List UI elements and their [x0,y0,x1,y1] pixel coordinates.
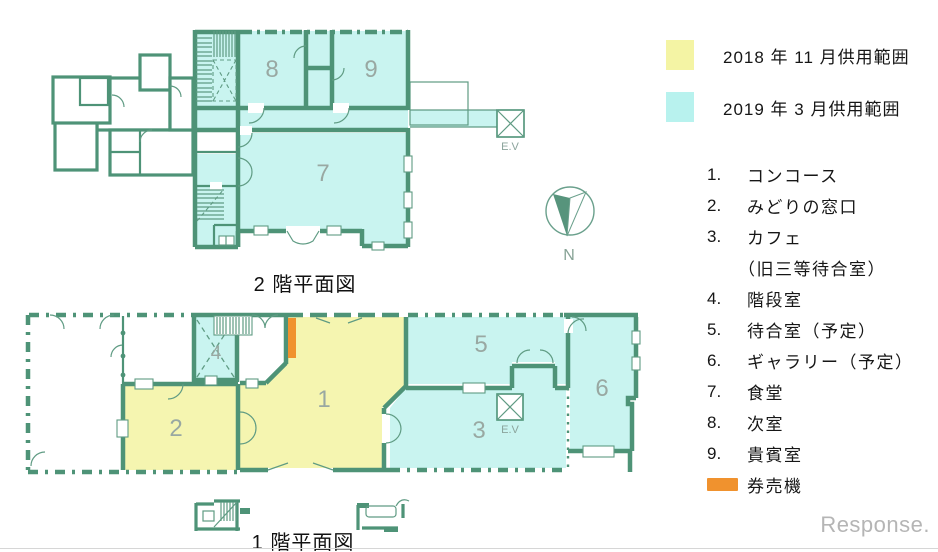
room-list-label: 貴賓室 [747,441,803,466]
ticket-machine-label: 券売機 [747,472,803,497]
room-list-num: 6. [707,351,733,371]
room-list-item-1: 1. コンコース [707,159,914,190]
room-number-1: 1 [317,386,330,413]
room-list-item-8: 8. 次室 [707,407,914,438]
floor1-plan: 1 2 3 4 5 6 E.V [28,315,640,472]
room-list-item-7: 7. 食堂 [707,376,914,407]
room-list-label: 待合室（予定） [747,317,877,342]
room-list-label: 食堂 [747,379,784,404]
room-list-item-9: 9. 貴賓室 [707,438,914,469]
response-watermark: Response. [820,512,930,538]
room-list-num: 3. [707,227,733,247]
room-number-3: 3 [472,417,485,444]
room-list-item-3-note: （旧三等待合室） [707,252,914,283]
elevator-label-1f: E.V [501,424,519,436]
page: 8 9 7 E.V N [0,0,938,552]
north-compass: N [546,187,594,264]
floor2-west-wing [53,55,193,175]
compass-label: N [563,247,575,264]
watermark-text: Response. [820,512,930,538]
room-list-item-2: 2. みどりの窓口 [707,190,914,221]
room-number-7: 7 [316,160,329,187]
legend-item-2018: 2018 年 11 月供用範囲 [666,40,910,70]
staircase-1f [214,316,252,335]
room-list-label: みどりの窓口 [747,193,858,218]
elevator-label-2f: E.V [501,141,519,153]
room-list-num: 9. [707,444,733,464]
room-list-num: 8. [707,413,733,433]
legend-item-2019: 2019 年 3 月供用範囲 [666,92,900,122]
room-list-label: 次室 [747,410,784,435]
room-list-num: 7. [707,382,733,402]
ticket-machine-marker [288,318,296,358]
ticket-machine-legend: 券売機 [707,469,914,500]
floor2-plan: 8 9 7 E.V [53,30,524,250]
room-list-item-4: 4. 階段室 [707,283,914,314]
room-list-item-5: 5. 待合室（予定） [707,314,914,345]
legend-label-2019: 2019 年 3 月供用範囲 [723,95,900,120]
room-number-8: 8 [265,56,278,83]
window-mark [254,226,268,235]
room-number-4: 4 [211,343,222,364]
legend-swatch-yellow [666,40,694,70]
floor2-title: 2 階平面図 [240,268,370,297]
room-list-item-3: 3. カフェ [707,221,914,252]
room-list-num: 5. [707,320,733,340]
room-number-2: 2 [169,415,182,442]
room-list-label: カフェ [747,224,803,249]
legend-swatch-cyan [666,92,694,122]
room-list-label: 階段室 [747,286,803,311]
room-list-num: 1. [707,165,733,185]
room-number-9: 9 [364,56,377,83]
room-list-label: コンコース [747,162,839,187]
room-list: 1. コンコース 2. みどりの窓口 3. カフェ （旧三等待合室） 4. 階段… [707,159,914,500]
bottom-divider [0,548,938,549]
room-list-label: ギャラリー（予定） [747,348,914,373]
room-list-num: 2. [707,196,733,216]
legend-label-2018: 2018 年 11 月供用範囲 [723,43,910,68]
room-list-num: 4. [707,289,733,309]
ticket-machine-swatch [707,478,738,491]
room-number-5: 5 [474,331,487,358]
room-number-6: 6 [595,375,608,402]
room-list-label: （旧三等待合室） [738,255,886,280]
room-list-item-6: 6. ギャラリー（予定） [707,345,914,376]
